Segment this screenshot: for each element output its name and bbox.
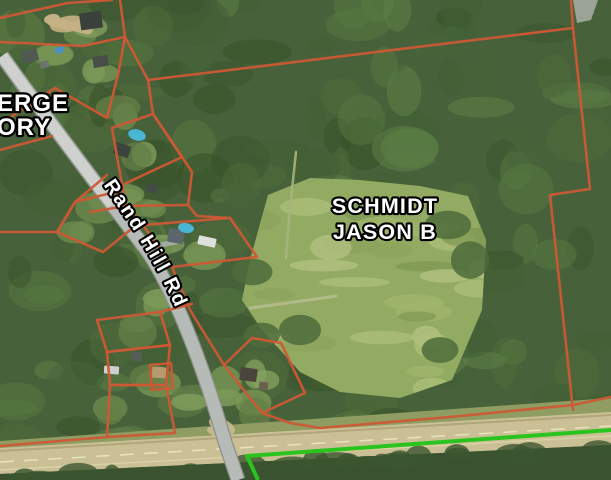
building-footprint	[239, 367, 258, 382]
aerial-map[interactable]: ERGE ORY SCHMIDT JASON B Rand Hill Rd	[0, 0, 611, 480]
partial-owner-label-line2: ORY	[0, 114, 51, 141]
building-footprint	[79, 11, 103, 31]
building-footprint	[104, 365, 120, 374]
building-footprint	[131, 352, 143, 362]
building-footprint	[258, 381, 268, 390]
building-footprint	[152, 367, 167, 379]
map-viewport[interactable]: ERGE ORY SCHMIDT JASON B Rand Hill Rd	[0, 0, 611, 480]
owner-label-line2: JASON B	[333, 220, 437, 244]
terrain-layer	[0, 0, 611, 480]
partial-owner-label-line1: ERGE	[0, 90, 69, 117]
owner-label-line1: SCHMIDT	[332, 194, 438, 218]
